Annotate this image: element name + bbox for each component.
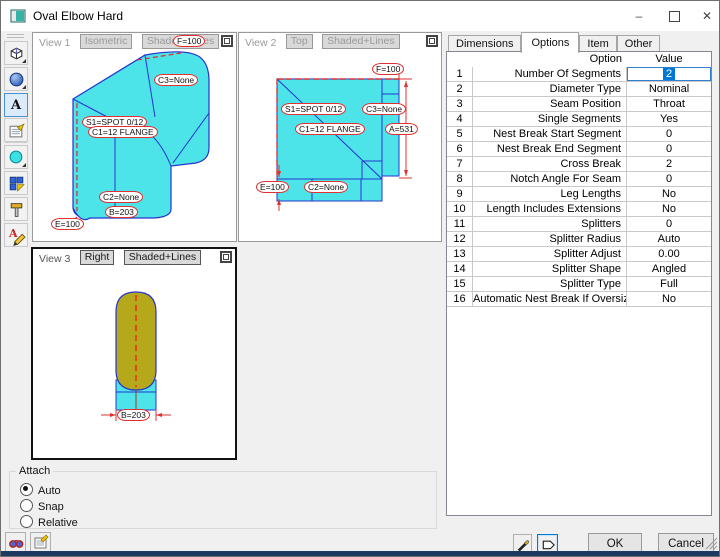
- find-standards-button[interactable]: [5, 532, 26, 552]
- dim-label-s1[interactable]: S1=SPOT 0/12: [281, 103, 346, 115]
- dim-label-b[interactable]: B=203: [117, 409, 150, 421]
- row-number-cell: 2: [447, 82, 473, 97]
- view2-maximize-icon[interactable]: [426, 35, 438, 47]
- option-value-cell[interactable]: 2: [627, 157, 711, 172]
- table-row[interactable]: 4Single SegmentsYes: [447, 112, 711, 127]
- form-icon: [8, 122, 25, 139]
- option-name-cell: Cross Break: [473, 157, 627, 172]
- markup-pen-button[interactable]: A: [4, 223, 28, 247]
- view2-title: View 2: [245, 33, 276, 51]
- table-row[interactable]: 16Automatic Nest Break If OversizeNo: [447, 292, 711, 307]
- option-name-cell: Leg Lengths: [473, 187, 627, 202]
- view2-panel: View 2 Top Shaded+Lines F=100 S1=SPOT 0/…: [238, 32, 442, 242]
- option-name-cell: Single Segments: [473, 112, 627, 127]
- pencil-icon: [5, 224, 27, 246]
- dim-label-e[interactable]: E=100: [51, 218, 84, 230]
- option-value-cell[interactable]: 0: [627, 127, 711, 142]
- option-value-cell[interactable]: No: [627, 202, 711, 217]
- row-number-cell: 7: [447, 157, 473, 172]
- row-number-cell: 5: [447, 127, 473, 142]
- option-value-cell[interactable]: 0: [627, 172, 711, 187]
- table-row[interactable]: 7Cross Break2: [447, 157, 711, 172]
- table-row[interactable]: 11Splitters0: [447, 217, 711, 232]
- table-row[interactable]: 10Length Includes ExtensionsNo: [447, 202, 711, 217]
- dim-label-c1[interactable]: C1=12 FLANGE: [295, 123, 365, 135]
- table-row[interactable]: 1Number Of Segments2: [447, 67, 711, 82]
- dim-label-e[interactable]: E=100: [256, 181, 289, 193]
- tab-other[interactable]: Other: [617, 35, 661, 52]
- row-number-cell: 4: [447, 112, 473, 127]
- tab-dimensions[interactable]: Dimensions: [448, 35, 521, 52]
- dialog-window: Oval Elbow Hard – ✕ A: [0, 0, 720, 557]
- option-value-cell[interactable]: Auto: [627, 232, 711, 247]
- dim-label-c3[interactable]: C3=None: [154, 74, 198, 86]
- option-name-cell: Number Of Segments: [473, 67, 627, 82]
- form-pencil-icon: [33, 534, 49, 550]
- attach-group: Attach Auto Snap Relative: [9, 471, 437, 529]
- option-name-cell: Automatic Nest Break If Oversize: [473, 292, 627, 307]
- option-value-cell[interactable]: Throat: [627, 97, 711, 112]
- row-number-cell: 11: [447, 217, 473, 232]
- maximize-icon: [669, 11, 680, 22]
- pattern-grid-button[interactable]: [4, 171, 28, 195]
- option-name-cell: Splitter Type: [473, 277, 627, 292]
- dropdown-corner-icon: [22, 163, 26, 167]
- view2-top-graphic: [239, 51, 441, 241]
- table-row[interactable]: 14Splitter ShapeAngled: [447, 262, 711, 277]
- toolbar-separator: [5, 142, 27, 143]
- option-value-cell[interactable]: Yes: [627, 112, 711, 127]
- grid-icon: [8, 175, 25, 192]
- table-row[interactable]: 9Leg LengthsNo: [447, 187, 711, 202]
- option-name-cell: Splitters: [473, 217, 627, 232]
- option-name-cell: Splitter Radius: [473, 232, 627, 247]
- close-button[interactable]: ✕: [690, 1, 720, 31]
- view1-header: View 1 Isometric Shaded+Lines: [33, 33, 236, 51]
- tag-icon: [540, 537, 556, 552]
- option-value-cell[interactable]: No: [627, 187, 711, 202]
- option-value-cell[interactable]: 0: [627, 217, 711, 232]
- radio-relative[interactable]: [20, 515, 33, 528]
- option-name-cell: Nest Break End Segment: [473, 142, 627, 157]
- table-row[interactable]: 15Splitter TypeFull: [447, 277, 711, 292]
- row-number-cell: 8: [447, 172, 473, 187]
- maximize-button[interactable]: [657, 1, 691, 31]
- radio-auto[interactable]: [20, 483, 33, 496]
- table-row[interactable]: 8Notch Angle For Seam0: [447, 172, 711, 187]
- attach-relative-option[interactable]: Relative: [20, 515, 78, 528]
- attach-snap-option[interactable]: Snap: [20, 499, 64, 512]
- sphere-shading-button[interactable]: [4, 67, 28, 91]
- tab-item[interactable]: Item: [579, 35, 616, 52]
- view3-shading-button[interactable]: Shaded+Lines: [124, 250, 201, 265]
- binoculars-icon: [8, 534, 24, 550]
- dim-label-c2[interactable]: C2=None: [304, 181, 348, 193]
- pen-icon: [515, 536, 530, 552]
- options-grid-body: 1Number Of Segments22Diameter TypeNomina…: [447, 67, 711, 307]
- option-name-cell: Diameter Type: [473, 82, 627, 97]
- view2-header: View 2 Top Shaded+Lines: [239, 33, 441, 51]
- row-number-cell: 9: [447, 187, 473, 202]
- row-number-cell: 16: [447, 292, 473, 307]
- option-name-cell: Splitter Adjust: [473, 247, 627, 262]
- ellipse-shape-button[interactable]: [4, 145, 28, 169]
- app-icon: [10, 8, 26, 24]
- option-column-header: Option: [473, 52, 627, 67]
- cube-view-button[interactable]: [4, 41, 28, 65]
- grid-header: Option Value: [447, 52, 711, 67]
- options-tabs: Dimensions Options Item Other: [448, 31, 660, 52]
- view1-projection-button[interactable]: Isometric: [80, 34, 133, 49]
- view3-drawing: B=203: [33, 267, 235, 456]
- view2-shading-button[interactable]: Shaded+Lines: [322, 34, 399, 49]
- option-name-cell: Notch Angle For Seam: [473, 172, 627, 187]
- dim-label-f[interactable]: F=100: [372, 63, 404, 75]
- dim-label-a[interactable]: A=531: [385, 123, 418, 135]
- option-value-cell[interactable]: Angled: [627, 262, 711, 277]
- table-row[interactable]: 12Splitter RadiusAuto: [447, 232, 711, 247]
- view2-drawing: F=100 S1=SPOT 0/12 C3=None C1=12 FLANGE …: [239, 51, 441, 241]
- title-bar: Oval Elbow Hard – ✕: [1, 1, 719, 31]
- options-grid: Option Value 1Number Of Segments22Diamet…: [446, 51, 712, 516]
- row-number-cell: 12: [447, 232, 473, 247]
- radio-snap[interactable]: [20, 499, 33, 512]
- radio-auto-label: Auto: [38, 485, 61, 497]
- dim-label-c1[interactable]: C1=12 FLANGE: [88, 126, 158, 138]
- minimize-button[interactable]: –: [622, 1, 656, 31]
- radio-dot: [23, 486, 28, 491]
- view1-title: View 1: [39, 33, 70, 51]
- option-name-cell: Length Includes Extensions: [473, 202, 627, 217]
- view3-panel: View 3 Right Shaded+Lines B=203: [31, 247, 237, 460]
- row-number-cell: 14: [447, 262, 473, 277]
- row-number-cell: 13: [447, 247, 473, 262]
- view1-panel: View 1 Isometric Shaded+Lines F=100 C3=N…: [32, 32, 237, 242]
- window-title: Oval Elbow Hard: [33, 1, 123, 31]
- view3-header: View 3 Right Shaded+Lines: [33, 249, 235, 267]
- view2-projection-button[interactable]: Top: [286, 34, 313, 49]
- properties-form-button[interactable]: [4, 118, 28, 142]
- taskbar-edge: [1, 551, 719, 556]
- tab-options[interactable]: Options: [521, 32, 579, 53]
- option-value-cell[interactable]: No: [627, 292, 711, 307]
- dim-label-c3[interactable]: C3=None: [362, 103, 406, 115]
- option-name-cell: Splitter Shape: [473, 262, 627, 277]
- radio-snap-label: Snap: [38, 501, 64, 513]
- view3-title: View 3: [39, 249, 70, 267]
- option-value-cell[interactable]: 2: [627, 67, 711, 82]
- option-name-cell: Nest Break Start Segment: [473, 127, 627, 142]
- dim-label-c2[interactable]: C2=None: [99, 191, 143, 203]
- attach-group-title: Attach: [16, 465, 53, 477]
- option-value-cell[interactable]: 0.00: [627, 247, 711, 262]
- value-column-header: Value: [627, 52, 711, 67]
- annotation-a-icon: A: [11, 99, 21, 112]
- item-properties-button[interactable]: [30, 532, 51, 552]
- table-row[interactable]: 13Splitter Adjust0.00: [447, 247, 711, 262]
- row-number-cell: 3: [447, 97, 473, 112]
- row-number-cell: 15: [447, 277, 473, 292]
- option-value-cell[interactable]: 0: [627, 142, 711, 157]
- resize-grip[interactable]: [705, 537, 718, 550]
- option-value-cell[interactable]: Full: [627, 277, 711, 292]
- selected-value-text: 2: [663, 68, 675, 80]
- row-number-cell: 1: [447, 67, 473, 82]
- option-name-cell: Seam Position: [473, 97, 627, 112]
- tools-hammer-button[interactable]: [4, 197, 28, 221]
- annotations-button[interactable]: A: [4, 93, 28, 117]
- dim-label-b[interactable]: B=203: [105, 206, 138, 218]
- hammer-icon: [8, 201, 25, 218]
- row-number-cell: 6: [447, 142, 473, 157]
- table-row[interactable]: 3Seam PositionThroat: [447, 97, 711, 112]
- radio-relative-label: Relative: [38, 517, 78, 529]
- view3-maximize-icon[interactable]: [220, 251, 232, 263]
- table-row[interactable]: 2Diameter TypeNominal: [447, 82, 711, 97]
- dropdown-corner-icon: [22, 85, 26, 89]
- row-number-cell: 10: [447, 202, 473, 217]
- view1-drawing: F=100 C3=None S1=SPOT 0/12 C1=12 FLANGE …: [33, 51, 236, 241]
- view1-maximize-icon[interactable]: [221, 35, 233, 47]
- option-value-cell[interactable]: Nominal: [627, 82, 711, 97]
- dropdown-corner-icon: [22, 59, 26, 63]
- view3-projection-button[interactable]: Right: [80, 250, 115, 265]
- table-row[interactable]: 5Nest Break Start Segment0: [447, 127, 711, 142]
- view3-side-graphic: [33, 267, 235, 456]
- table-row[interactable]: 6Nest Break End Segment0: [447, 142, 711, 157]
- attach-auto-option[interactable]: Auto: [20, 483, 61, 496]
- dim-label-f[interactable]: F=100: [173, 35, 205, 47]
